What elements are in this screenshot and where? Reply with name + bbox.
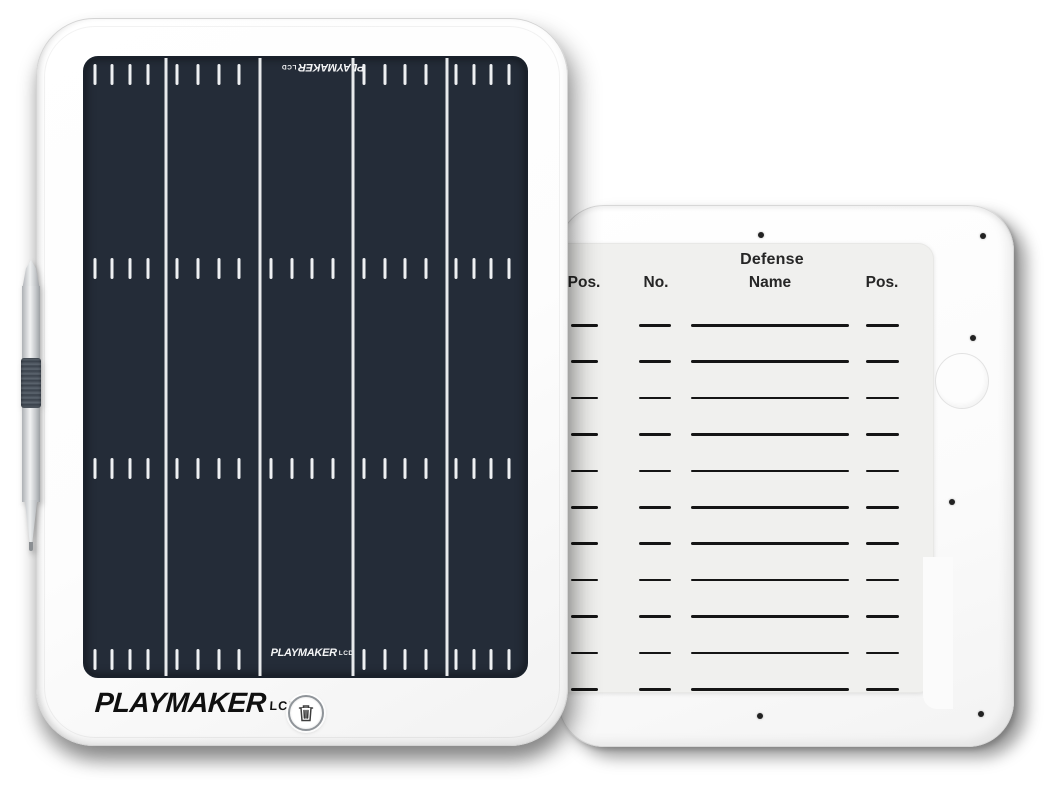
- blank-line: [866, 579, 899, 582]
- hash-tick: [363, 458, 366, 479]
- roster-row: [521, 470, 934, 473]
- blank-line: [691, 506, 849, 509]
- hash-tick: [363, 64, 366, 85]
- brand-text: PLAYMAKER: [94, 687, 267, 718]
- blank-line: [639, 470, 671, 473]
- hash-tick: [129, 258, 132, 279]
- screw-dot: [970, 335, 976, 341]
- roster-row: [521, 652, 934, 655]
- brand-logo: PLAYMAKERLCD: [94, 687, 300, 719]
- hash-tick: [404, 64, 407, 85]
- roster-row: [521, 360, 934, 363]
- blank-line: [691, 579, 849, 582]
- blank-line: [866, 470, 899, 473]
- stylus-tip: [22, 500, 40, 544]
- yard-line: [352, 58, 355, 676]
- hash-tick: [217, 649, 220, 670]
- hash-tick: [111, 649, 114, 670]
- hash-tick: [490, 64, 493, 85]
- hash-tick: [472, 649, 475, 670]
- hash-tick: [490, 649, 493, 670]
- blank-line: [571, 470, 598, 473]
- erase-button[interactable]: [288, 695, 324, 731]
- hash-tick: [383, 649, 386, 670]
- blank-line: [639, 542, 671, 545]
- blank-line: [639, 397, 671, 400]
- blank-line: [639, 652, 671, 655]
- stylus-grip: [21, 358, 41, 408]
- blank-line: [639, 506, 671, 509]
- card-edge-step: [923, 557, 953, 709]
- blank-line: [691, 688, 849, 691]
- hash-tick: [270, 258, 273, 279]
- hash-tick: [507, 649, 510, 670]
- blank-line: [571, 688, 598, 691]
- hash-tick: [311, 258, 314, 279]
- hash-tick: [196, 649, 199, 670]
- blank-line: [571, 324, 598, 327]
- blank-line: [571, 615, 598, 618]
- hash-tick: [455, 458, 458, 479]
- stylus[interactable]: [19, 260, 43, 552]
- blank-line: [691, 652, 849, 655]
- screw-dot: [757, 713, 763, 719]
- yard-line: [164, 58, 167, 676]
- screw-dot: [949, 499, 955, 505]
- hash-tick: [507, 64, 510, 85]
- hash-tick: [455, 64, 458, 85]
- blank-line: [691, 615, 849, 618]
- hash-tick: [290, 458, 293, 479]
- hash-tick: [176, 64, 179, 85]
- front-tablet: PLAYMAKERLCD PLAYMAKERLCD PLAYMAKERLCD: [36, 18, 568, 746]
- blank-line: [866, 542, 899, 545]
- hash-tick: [196, 258, 199, 279]
- hash-tick: [425, 458, 428, 479]
- hash-tick: [176, 649, 179, 670]
- hash-tick: [129, 64, 132, 85]
- hash-tick: [383, 64, 386, 85]
- hash-tick: [472, 64, 475, 85]
- screen-logo-text: PLAYMAKER: [298, 61, 364, 73]
- blank-line: [571, 360, 598, 363]
- hash-tick: [217, 258, 220, 279]
- hash-tick: [404, 458, 407, 479]
- screen-logo-text: PLAYMAKER: [271, 647, 337, 659]
- blank-line: [639, 324, 671, 327]
- blank-line: [866, 397, 899, 400]
- hash-tick: [331, 458, 334, 479]
- hash-tick: [129, 458, 132, 479]
- hash-tick: [93, 258, 96, 279]
- yard-line: [445, 58, 448, 676]
- screen-logo-suffix: LCD: [282, 63, 297, 70]
- roster-row: [521, 579, 934, 582]
- screw-dot: [980, 233, 986, 239]
- hash-tick: [425, 258, 428, 279]
- hash-tick: [217, 458, 220, 479]
- blank-line: [866, 360, 899, 363]
- roster-row: [521, 615, 934, 618]
- hash-tick: [176, 458, 179, 479]
- hash-tick: [404, 258, 407, 279]
- hash-tick: [290, 258, 293, 279]
- blank-line: [639, 615, 671, 618]
- hash-tick: [196, 64, 199, 85]
- blank-line: [866, 615, 899, 618]
- screw-dot: [978, 711, 984, 717]
- roster-card: Defense Pos.No.NamePos.: [521, 243, 934, 693]
- blank-line: [639, 360, 671, 363]
- screw-dot: [758, 232, 764, 238]
- blank-line: [571, 506, 598, 509]
- blank-line: [571, 397, 598, 400]
- hash-tick: [238, 458, 241, 479]
- trash-icon: [298, 704, 314, 722]
- hash-tick: [363, 649, 366, 670]
- hash-tick: [111, 64, 114, 85]
- hash-tick: [363, 258, 366, 279]
- blank-line: [571, 652, 598, 655]
- hash-tick: [472, 458, 475, 479]
- product-photo: Defense Pos.No.NamePos. PLAYMAKERLCD PLA…: [0, 0, 1056, 796]
- hash-tick: [111, 258, 114, 279]
- hash-tick: [146, 649, 149, 670]
- blank-line: [639, 688, 671, 691]
- blank-line: [571, 579, 598, 582]
- hash-tick: [93, 649, 96, 670]
- blank-line: [866, 652, 899, 655]
- hash-tick: [238, 258, 241, 279]
- blank-line: [691, 324, 849, 327]
- roster-row: [521, 324, 934, 327]
- roster-row: [521, 506, 934, 509]
- hash-tick: [507, 458, 510, 479]
- lcd-screen[interactable]: PLAYMAKERLCD PLAYMAKERLCD: [83, 56, 528, 678]
- hash-tick: [331, 258, 334, 279]
- yard-line: [259, 58, 262, 676]
- hash-tick: [383, 258, 386, 279]
- blank-line: [571, 542, 598, 545]
- hash-tick: [455, 649, 458, 670]
- roster-row: [521, 542, 934, 545]
- blank-line: [866, 324, 899, 327]
- roster-row: [521, 688, 934, 691]
- blank-line: [691, 542, 849, 545]
- hash-tick: [111, 458, 114, 479]
- hash-tick: [404, 649, 407, 670]
- back-tablet: Defense Pos.No.NamePos.: [558, 205, 1014, 747]
- blank-line: [691, 397, 849, 400]
- hash-tick: [425, 64, 428, 85]
- hash-tick: [146, 258, 149, 279]
- screen-logo-bottom: PLAYMAKERLCD: [271, 647, 354, 659]
- hash-tick: [129, 649, 132, 670]
- blank-line: [691, 470, 849, 473]
- blank-line: [639, 433, 671, 436]
- hash-tick: [146, 458, 149, 479]
- blank-line: [866, 506, 899, 509]
- blank-line: [866, 688, 899, 691]
- hash-tick: [146, 64, 149, 85]
- hash-tick: [270, 458, 273, 479]
- hash-tick: [311, 458, 314, 479]
- roster-row: [521, 397, 934, 400]
- blank-line: [691, 360, 849, 363]
- hash-tick: [217, 64, 220, 85]
- hash-tick: [196, 458, 199, 479]
- thumb-notch: [935, 353, 989, 409]
- blank-line: [866, 433, 899, 436]
- hash-tick: [383, 458, 386, 479]
- hash-tick: [238, 649, 241, 670]
- blank-line: [639, 579, 671, 582]
- hash-tick: [507, 258, 510, 279]
- roster-row: [521, 433, 934, 436]
- hash-tick: [93, 458, 96, 479]
- hash-tick: [238, 64, 241, 85]
- hash-tick: [472, 258, 475, 279]
- blank-line: [571, 433, 598, 436]
- hash-tick: [490, 458, 493, 479]
- stylus-nib: [29, 542, 33, 551]
- hash-tick: [425, 649, 428, 670]
- roster-rows: [521, 243, 934, 693]
- blank-line: [691, 433, 849, 436]
- hash-tick: [455, 258, 458, 279]
- hash-tick: [93, 64, 96, 85]
- hash-tick: [490, 258, 493, 279]
- hash-tick: [176, 258, 179, 279]
